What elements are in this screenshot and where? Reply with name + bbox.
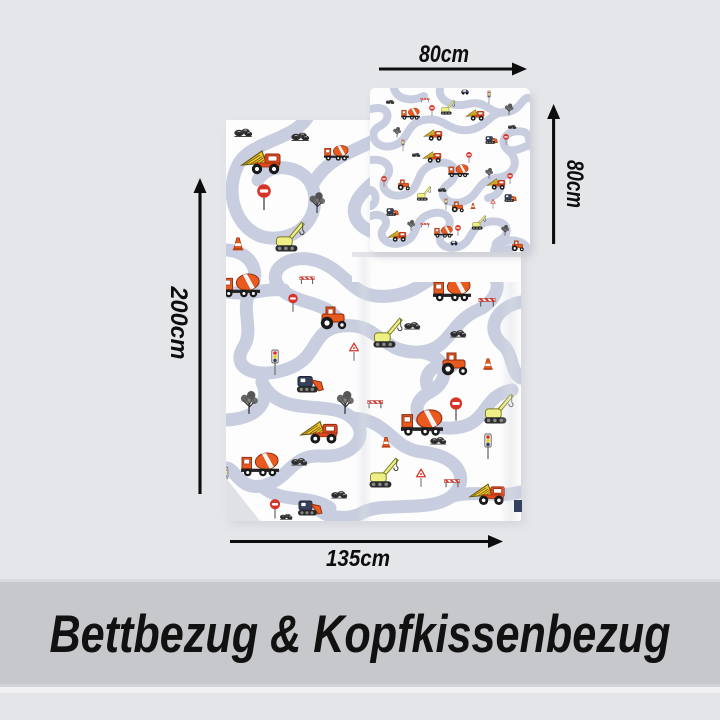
- svg-text:200cm: 200cm: [165, 286, 192, 360]
- svg-text:Bettbezug & Kopfkissenbezug: Bettbezug & Kopfkissenbezug: [50, 605, 671, 664]
- svg-text:80cm: 80cm: [419, 41, 469, 68]
- svg-text:135cm: 135cm: [326, 545, 390, 571]
- svg-text:80cm: 80cm: [561, 160, 588, 208]
